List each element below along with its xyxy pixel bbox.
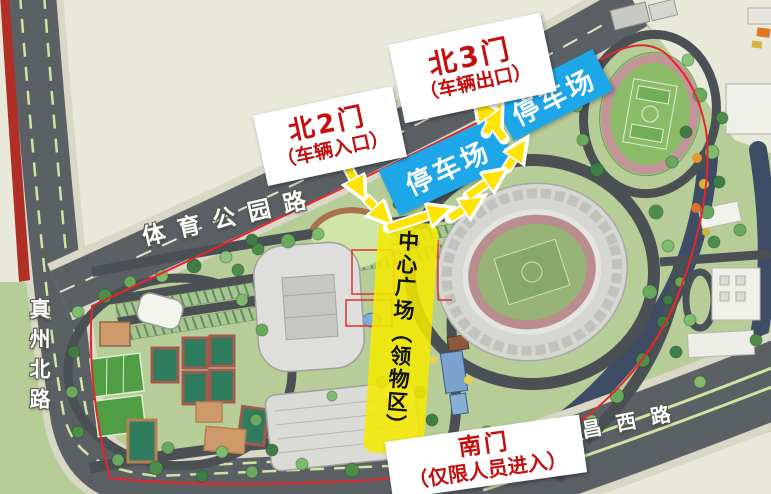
road-label-west: 真州北路 bbox=[24, 298, 54, 418]
central-plaza-label: 中心广场（领物区） bbox=[378, 221, 424, 455]
site-map: 体育公园路 真州北路 文昌西路 中心广场（领物区） 停车场 停车场 bbox=[0, 0, 771, 494]
